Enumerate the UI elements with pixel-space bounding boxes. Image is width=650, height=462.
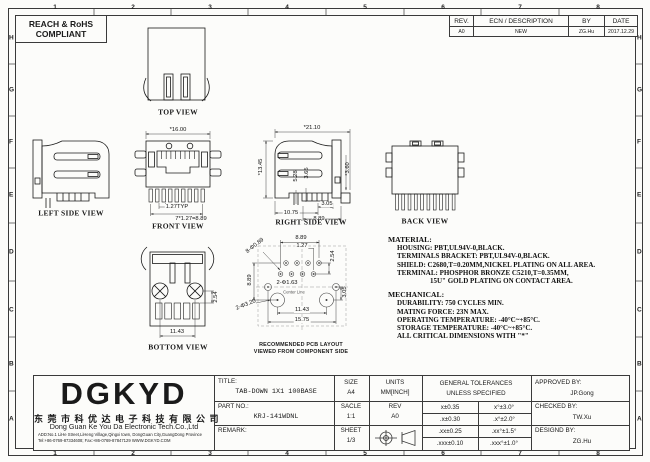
company-name-en: Dong Guan Ke You Da Electronic Tech.Co.,… bbox=[34, 422, 214, 431]
dim-right-a: 5.28 bbox=[293, 170, 299, 181]
dim-pcb-top: 8.89 bbox=[294, 235, 307, 241]
tolerance-cell: x°±3.0° bbox=[494, 404, 514, 411]
dim-right-b: 3.65 bbox=[304, 167, 310, 178]
remark-label: REMARK: bbox=[218, 427, 247, 434]
units-label: UNITS bbox=[386, 379, 405, 386]
company-contact: Tel:+86-0769-87334608; Fax:+86-0769-8784… bbox=[38, 438, 214, 443]
drawing-sheet: 1 2 3 4 5 6 7 8 1 2 3 4 5 6 7 8 H G F E … bbox=[0, 0, 650, 462]
tolerance-cell: x±0.35 bbox=[441, 404, 460, 411]
front-view-label: FRONT VIEW bbox=[152, 222, 204, 231]
checked-by-label: CHECKED BY: bbox=[535, 403, 577, 410]
mechanical-title: MECHANICAL: bbox=[388, 291, 595, 299]
size-value: A4 bbox=[347, 389, 355, 396]
dim-pcb-row: 2.54 bbox=[330, 250, 336, 261]
dim-pcb-mid-offset: 3.05 bbox=[342, 286, 348, 297]
front-view-art bbox=[135, 141, 221, 202]
pcb-caption-line1: RECOMMENDED PCB LAYOUT bbox=[259, 342, 343, 348]
tolerance-cell: .x±0.30 bbox=[440, 416, 460, 423]
material-line: TERMINAL: PHOSPHOR BRONZE C5210,T=0.35MM… bbox=[397, 269, 595, 277]
checked-by-value: TW.Xu bbox=[573, 414, 592, 421]
approved-by-value: JP.Gong bbox=[570, 390, 593, 397]
mechanical-line: OPERATING TEMPERATURE: -40°C~+85°C. bbox=[397, 316, 595, 324]
sheet-value: 1/3 bbox=[347, 437, 356, 444]
back-view-label: BACK VIEW bbox=[402, 217, 449, 226]
pcb-caption-line2: VIEWED FROM COMPONENT SIDE bbox=[254, 349, 348, 355]
mechanical-line: ALL CRITICAL DIMENSIONS WITH "*" bbox=[397, 332, 595, 340]
dim-pcb-mid-holes: 2-Φ1.63 bbox=[275, 280, 298, 286]
dim-right-d: 3.05 bbox=[320, 201, 333, 207]
mechanical-line: STORAGE TEMPERATURE: -40°C~+85°C. bbox=[397, 324, 595, 332]
rev-label: REV bbox=[389, 403, 402, 410]
dim-right-e: 10.75 bbox=[283, 210, 300, 216]
size-label: SIZE bbox=[344, 379, 358, 386]
designed-by-label: DESIGND BY: bbox=[535, 427, 575, 434]
title-label: TITLE: bbox=[218, 378, 237, 385]
scale-value: 1:1 bbox=[347, 413, 356, 420]
approved-by-label: APPROVED BY: bbox=[535, 379, 582, 386]
title-block: DGKYD 东 莞 市 科 优 达 电 子 科 技 有 限 公 司 Dong G… bbox=[33, 375, 630, 451]
dim-pcb-span-posts: 11.43 bbox=[294, 307, 310, 313]
material-line: SHIELD: C2680,T=0.20MM,NICKEL PLATING ON… bbox=[397, 261, 595, 269]
dim-bottom-b: 11.43 bbox=[169, 329, 185, 335]
rev-value: A0 bbox=[391, 413, 399, 420]
left-side-view-label: LEFT SIDE VIEW bbox=[38, 209, 104, 218]
material-title: MATERIAL: bbox=[388, 236, 595, 244]
tolerance-cell: .xx±0.25 bbox=[438, 428, 461, 435]
material-line: TERMINALS BRACKET: PBT,UL94V-0,BLACK. bbox=[397, 252, 595, 260]
mechanical-line: MATING FORCE: 23N MAX. bbox=[397, 308, 595, 316]
company-address: ADD:No.1 LiHe Street,LiHeng Village,Qing… bbox=[38, 432, 214, 437]
title-value: TAB-DOWN 1X1 100BASE bbox=[235, 388, 317, 396]
left-side-view-art bbox=[33, 140, 109, 208]
tolerance-header-line2: UNLESS SPECIFIED bbox=[446, 390, 505, 397]
part-no-value: KRJ-141WDNL bbox=[254, 413, 299, 421]
part-no-label: PART NO.: bbox=[218, 403, 249, 410]
bottom-view-art bbox=[141, 247, 214, 326]
units-value: MM[INCH] bbox=[381, 389, 410, 396]
sheet-label: SHEET bbox=[341, 427, 362, 434]
dim-front-pitch: 1.27TYP bbox=[165, 204, 190, 210]
back-view-art bbox=[386, 141, 464, 210]
dim-right-height: *13.45 bbox=[258, 159, 264, 176]
right-side-view-label: RIGHT SIDE VIEW bbox=[275, 218, 346, 227]
top-view-art bbox=[144, 28, 210, 101]
material-line: HOUSING: PBT,UL94V-0,BLACK. bbox=[397, 244, 595, 252]
dim-pcb-span-holes: 15.75 bbox=[294, 317, 311, 323]
notes-block: MATERIAL: HOUSING: PBT,UL94V-0,BLACK. TE… bbox=[388, 236, 595, 340]
dim-bottom-a: 2.54 bbox=[213, 291, 219, 302]
mechanical-line: DURABILITY: 750 CYCLES MIN. bbox=[397, 299, 595, 307]
dim-right-c: *3.60 bbox=[345, 162, 351, 176]
projection-symbol-icon bbox=[374, 428, 418, 448]
tolerance-cell: .xxx±0.10 bbox=[437, 440, 463, 447]
material-line: 15U" GOLD PLATING ON CONTACT AREA. bbox=[430, 277, 595, 285]
dim-pcb-pitch: 1.27 bbox=[295, 243, 308, 249]
tolerance-cell: .xxx°±1.0° bbox=[490, 440, 518, 447]
pcb-centerline-note: Center Line bbox=[282, 290, 306, 295]
designed-by-value: ZG.Hu bbox=[573, 438, 591, 445]
dim-pcb-left: 8.89 bbox=[247, 274, 253, 285]
dim-right-width: *21.10 bbox=[303, 125, 322, 131]
company-logo: DGKYD bbox=[34, 377, 214, 410]
top-view-label: TOP VIEW bbox=[158, 108, 198, 117]
right-side-view-art bbox=[275, 140, 350, 205]
dim-front-width: *16.00 bbox=[169, 127, 188, 133]
tolerance-cell: .xx°±1.5° bbox=[492, 428, 517, 435]
bottom-view-label: BOTTOM VIEW bbox=[148, 343, 208, 352]
tolerance-cell: .x°±2.0° bbox=[493, 416, 515, 423]
tolerance-header-line1: GENERAL TOLERANCES bbox=[440, 380, 513, 387]
scale-label: SACLE bbox=[341, 403, 361, 410]
